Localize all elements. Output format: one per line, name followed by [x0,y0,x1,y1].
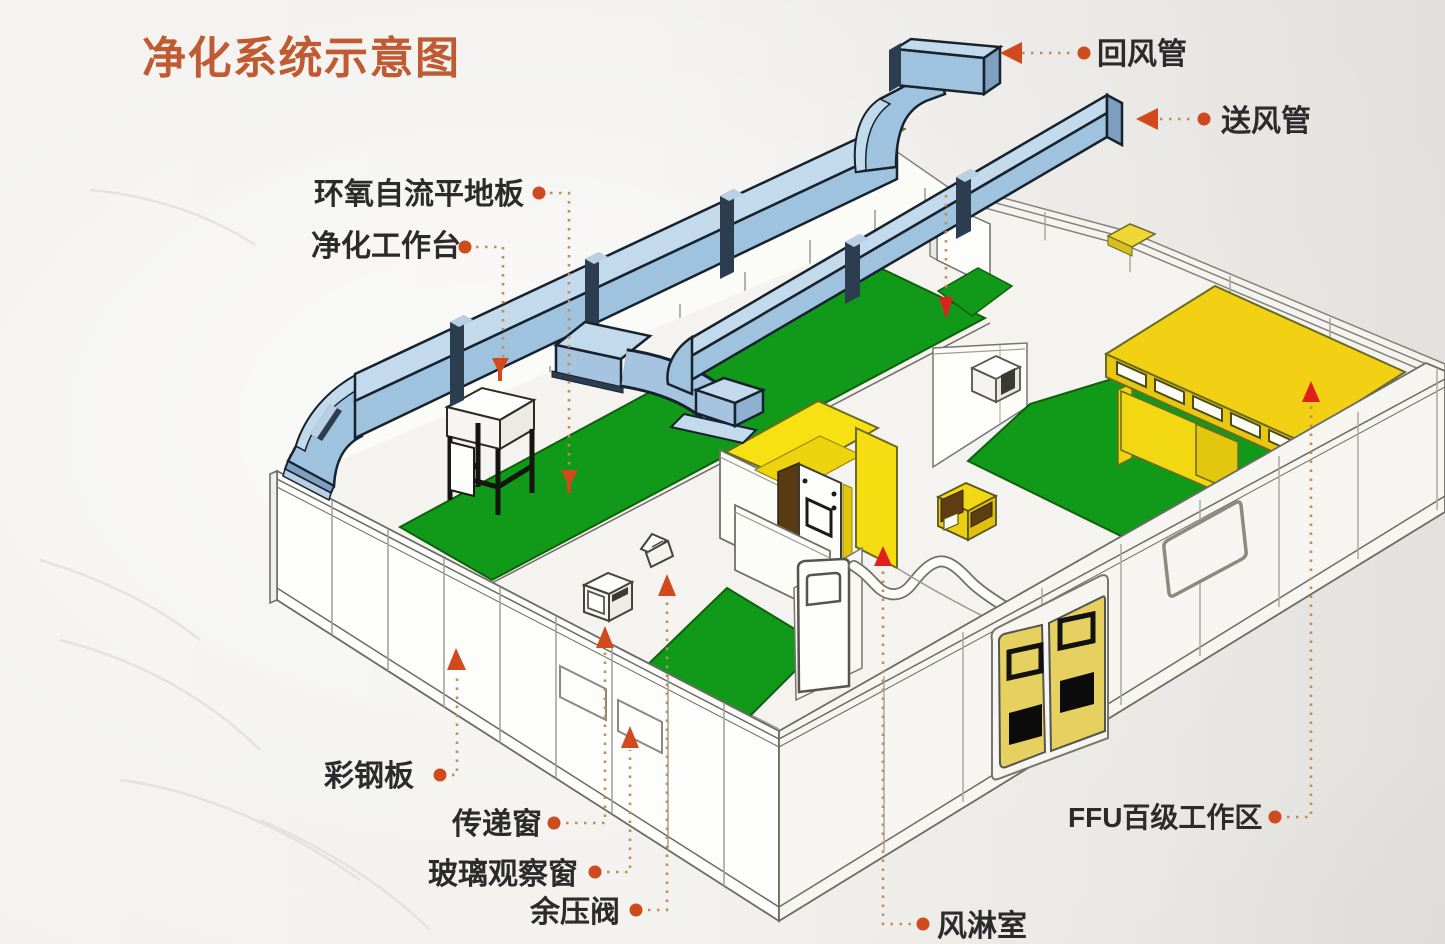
svg-text:余压阀: 余压阀 [529,895,620,929]
svg-text:净化工作台: 净化工作台 [311,229,461,263]
svg-text:风淋室: 风淋室 [937,909,1027,943]
svg-text:净化系统示意图: 净化系统示意图 [142,34,461,83]
svg-text:环氧自流平地板: 环氧自流平地板 [314,178,524,211]
svg-text:传递窗: 传递窗 [451,807,542,841]
svg-text:FFU百级工作区: FFU百级工作区 [1068,802,1262,833]
svg-text:彩钢板: 彩钢板 [324,760,414,793]
svg-text:玻璃观察窗: 玻璃观察窗 [428,857,578,891]
svg-text:回风管: 回风管 [1097,38,1187,71]
svg-text:送风管: 送风管 [1221,105,1311,138]
